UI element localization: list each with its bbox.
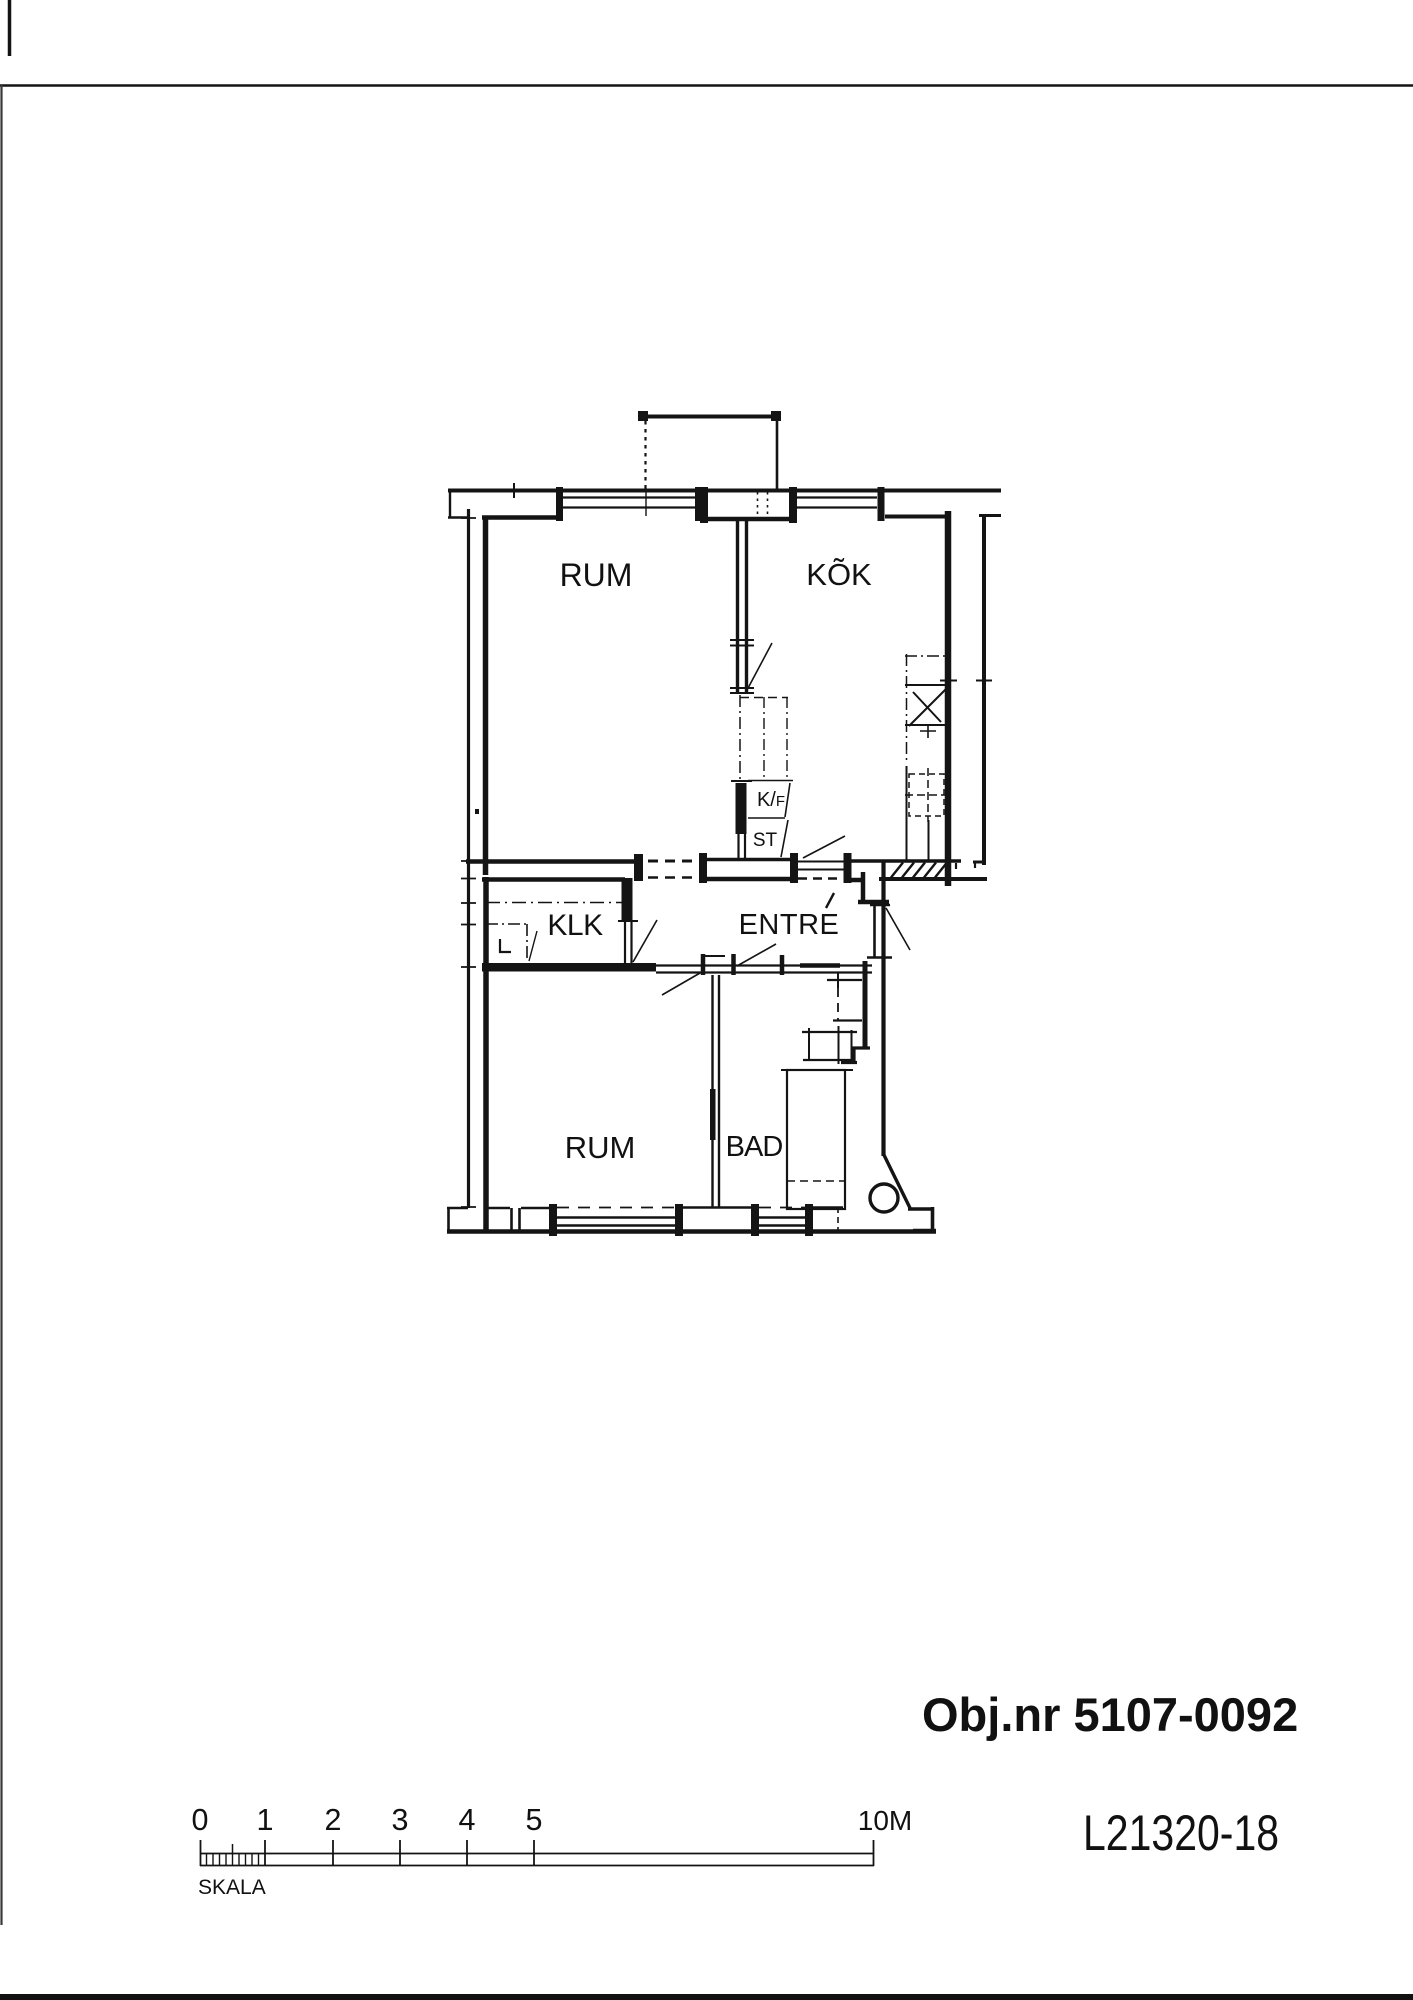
- svg-text:2: 2: [325, 1803, 342, 1837]
- svg-text:BAD: BAD: [726, 1131, 783, 1163]
- svg-text:K/F: K/F: [757, 789, 785, 811]
- svg-text:Obj.nr 5107-0092: Obj.nr 5107-0092: [922, 1688, 1298, 1741]
- svg-text:5: 5: [526, 1803, 543, 1837]
- svg-text:ENTRE: ENTRE: [739, 909, 840, 941]
- svg-text:KÕK: KÕK: [806, 557, 872, 592]
- svg-text:4: 4: [459, 1803, 476, 1837]
- svg-text:RUM: RUM: [565, 1130, 636, 1165]
- svg-text:ST: ST: [753, 830, 778, 851]
- svg-text:SKALA: SKALA: [198, 1876, 266, 1899]
- svg-text:RUM: RUM: [560, 557, 633, 593]
- svg-text:0: 0: [192, 1803, 209, 1837]
- svg-text:3: 3: [392, 1803, 409, 1837]
- svg-text:L21320-18: L21320-18: [1083, 1805, 1279, 1861]
- svg-text:KLK: KLK: [547, 909, 603, 942]
- svg-text:10M: 10M: [858, 1805, 912, 1836]
- svg-text:1: 1: [257, 1803, 274, 1837]
